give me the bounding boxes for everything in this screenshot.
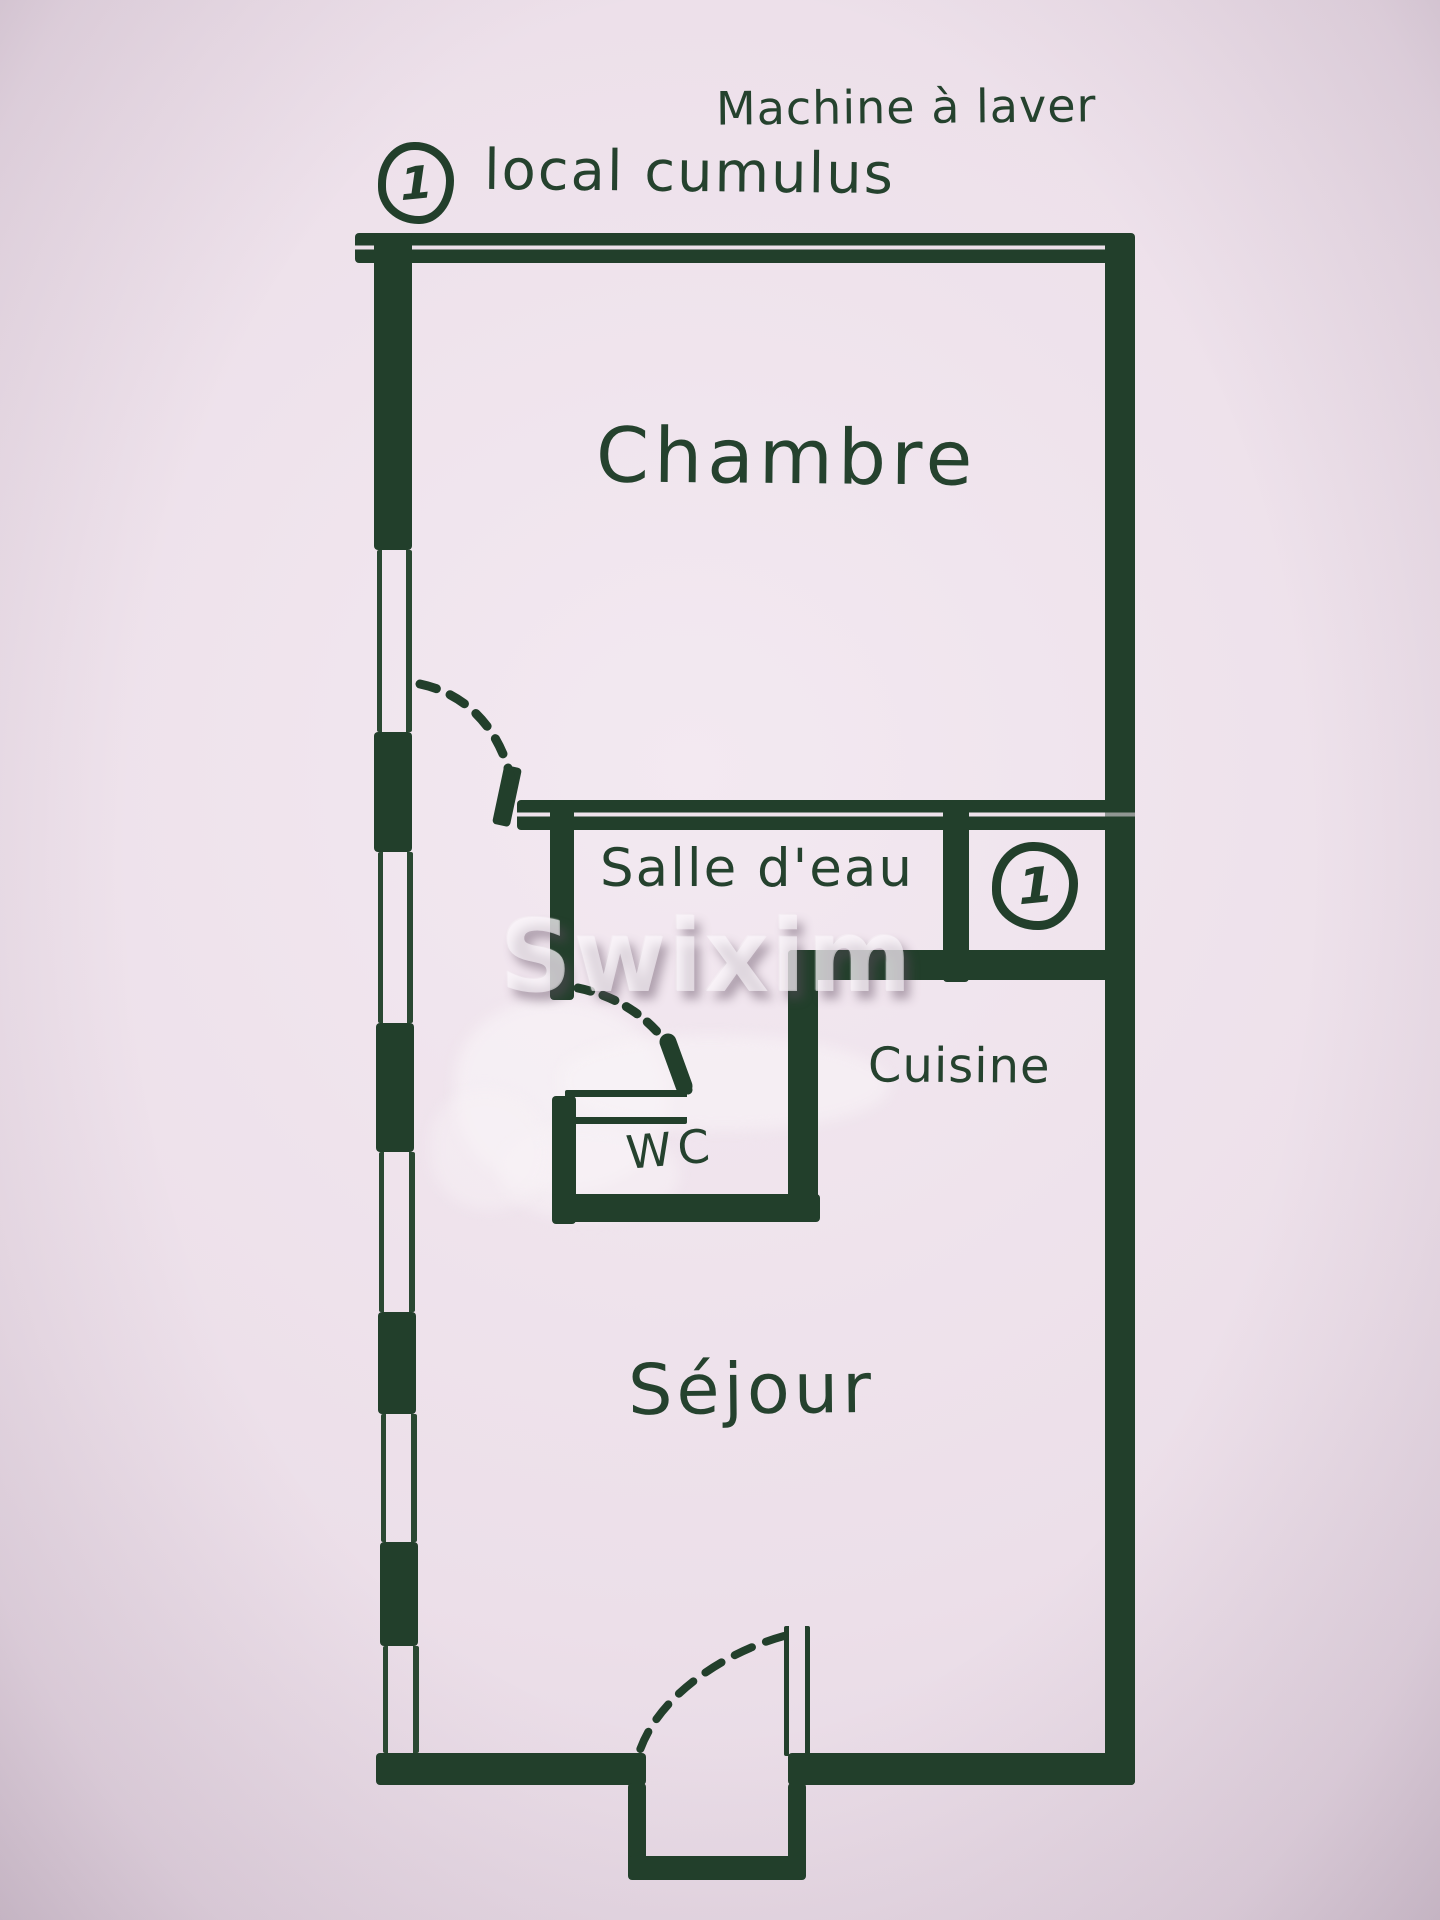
wall-outer-bottom-left	[376, 1753, 646, 1785]
porch-wall-bottom	[628, 1856, 806, 1880]
wall-outer-bottom-right	[788, 1753, 1135, 1785]
wall-chambre-salledeau	[517, 800, 1135, 830]
window-segment	[377, 550, 412, 732]
circled-1-label: 1	[396, 154, 436, 211]
circled-1-badge-top: 1	[378, 142, 454, 224]
window-segment	[383, 1646, 419, 1753]
window-segment	[381, 1414, 417, 1542]
wall-wc-bottom	[552, 1194, 820, 1222]
erased-patch	[430, 1090, 550, 1210]
wall-segment	[380, 1542, 418, 1646]
wall-outer-left	[374, 233, 412, 1753]
door-arc-chambre	[420, 684, 513, 790]
label-chambre: Chambre	[596, 410, 978, 502]
floor-plan-photo: 1 1 Machine à laver local cumulus Chambr…	[0, 0, 1440, 1920]
label-wc: WC	[624, 1118, 718, 1180]
window-segment	[378, 852, 413, 1023]
window-segment	[379, 1152, 415, 1312]
circled-1-label: 1	[1013, 855, 1057, 916]
door-arc-entry	[640, 1636, 784, 1750]
label-sejour: Séjour	[628, 1347, 876, 1431]
door-arc-wc-end	[668, 1042, 684, 1086]
wall-segment	[374, 233, 412, 550]
entry-door-leaf	[784, 1626, 810, 1756]
wall-segment	[378, 1312, 416, 1414]
label-local-cumulus: local cumulus	[484, 138, 896, 207]
label-machine-a-laver: Machine à laver	[716, 78, 1097, 135]
watermark-swixim: Swixim	[500, 898, 914, 1015]
circled-1-badge-cumulus: 1	[992, 842, 1078, 930]
wall-outer-right	[1105, 233, 1135, 1785]
wall-segment	[376, 1023, 414, 1152]
wall-segment	[374, 732, 412, 852]
label-salle-deau: Salle d'eau	[600, 838, 914, 899]
wall-outer-top	[355, 233, 1127, 263]
label-cuisine: Cuisine	[868, 1037, 1051, 1094]
wall-wc-top	[565, 1090, 687, 1124]
